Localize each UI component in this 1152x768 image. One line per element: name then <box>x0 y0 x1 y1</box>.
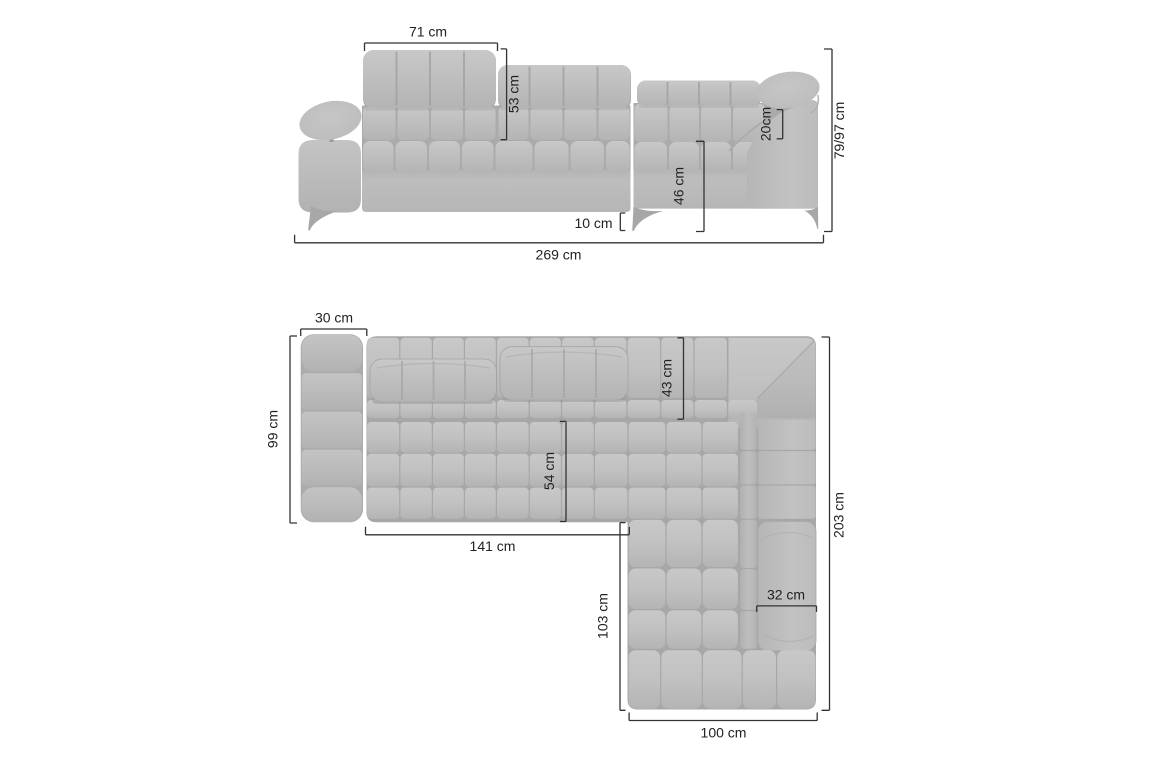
svg-text:141 cm: 141 cm <box>470 538 516 554</box>
svg-text:99 cm: 99 cm <box>265 410 281 448</box>
svg-text:32 cm: 32 cm <box>767 587 805 603</box>
svg-text:203 cm: 203 cm <box>831 492 847 538</box>
svg-text:100 cm: 100 cm <box>701 725 747 741</box>
svg-text:103 cm: 103 cm <box>595 593 611 639</box>
svg-text:71 cm: 71 cm <box>409 24 447 40</box>
svg-text:10 cm: 10 cm <box>574 215 612 231</box>
svg-text:53 cm: 53 cm <box>506 75 522 113</box>
svg-text:46 cm: 46 cm <box>671 167 687 205</box>
svg-text:20cm: 20cm <box>758 107 774 141</box>
svg-text:79/97 cm: 79/97 cm <box>831 102 847 160</box>
svg-text:30 cm: 30 cm <box>315 310 353 326</box>
svg-text:43 cm: 43 cm <box>659 359 675 397</box>
svg-text:54 cm: 54 cm <box>541 452 557 490</box>
svg-text:269 cm: 269 cm <box>536 247 582 263</box>
